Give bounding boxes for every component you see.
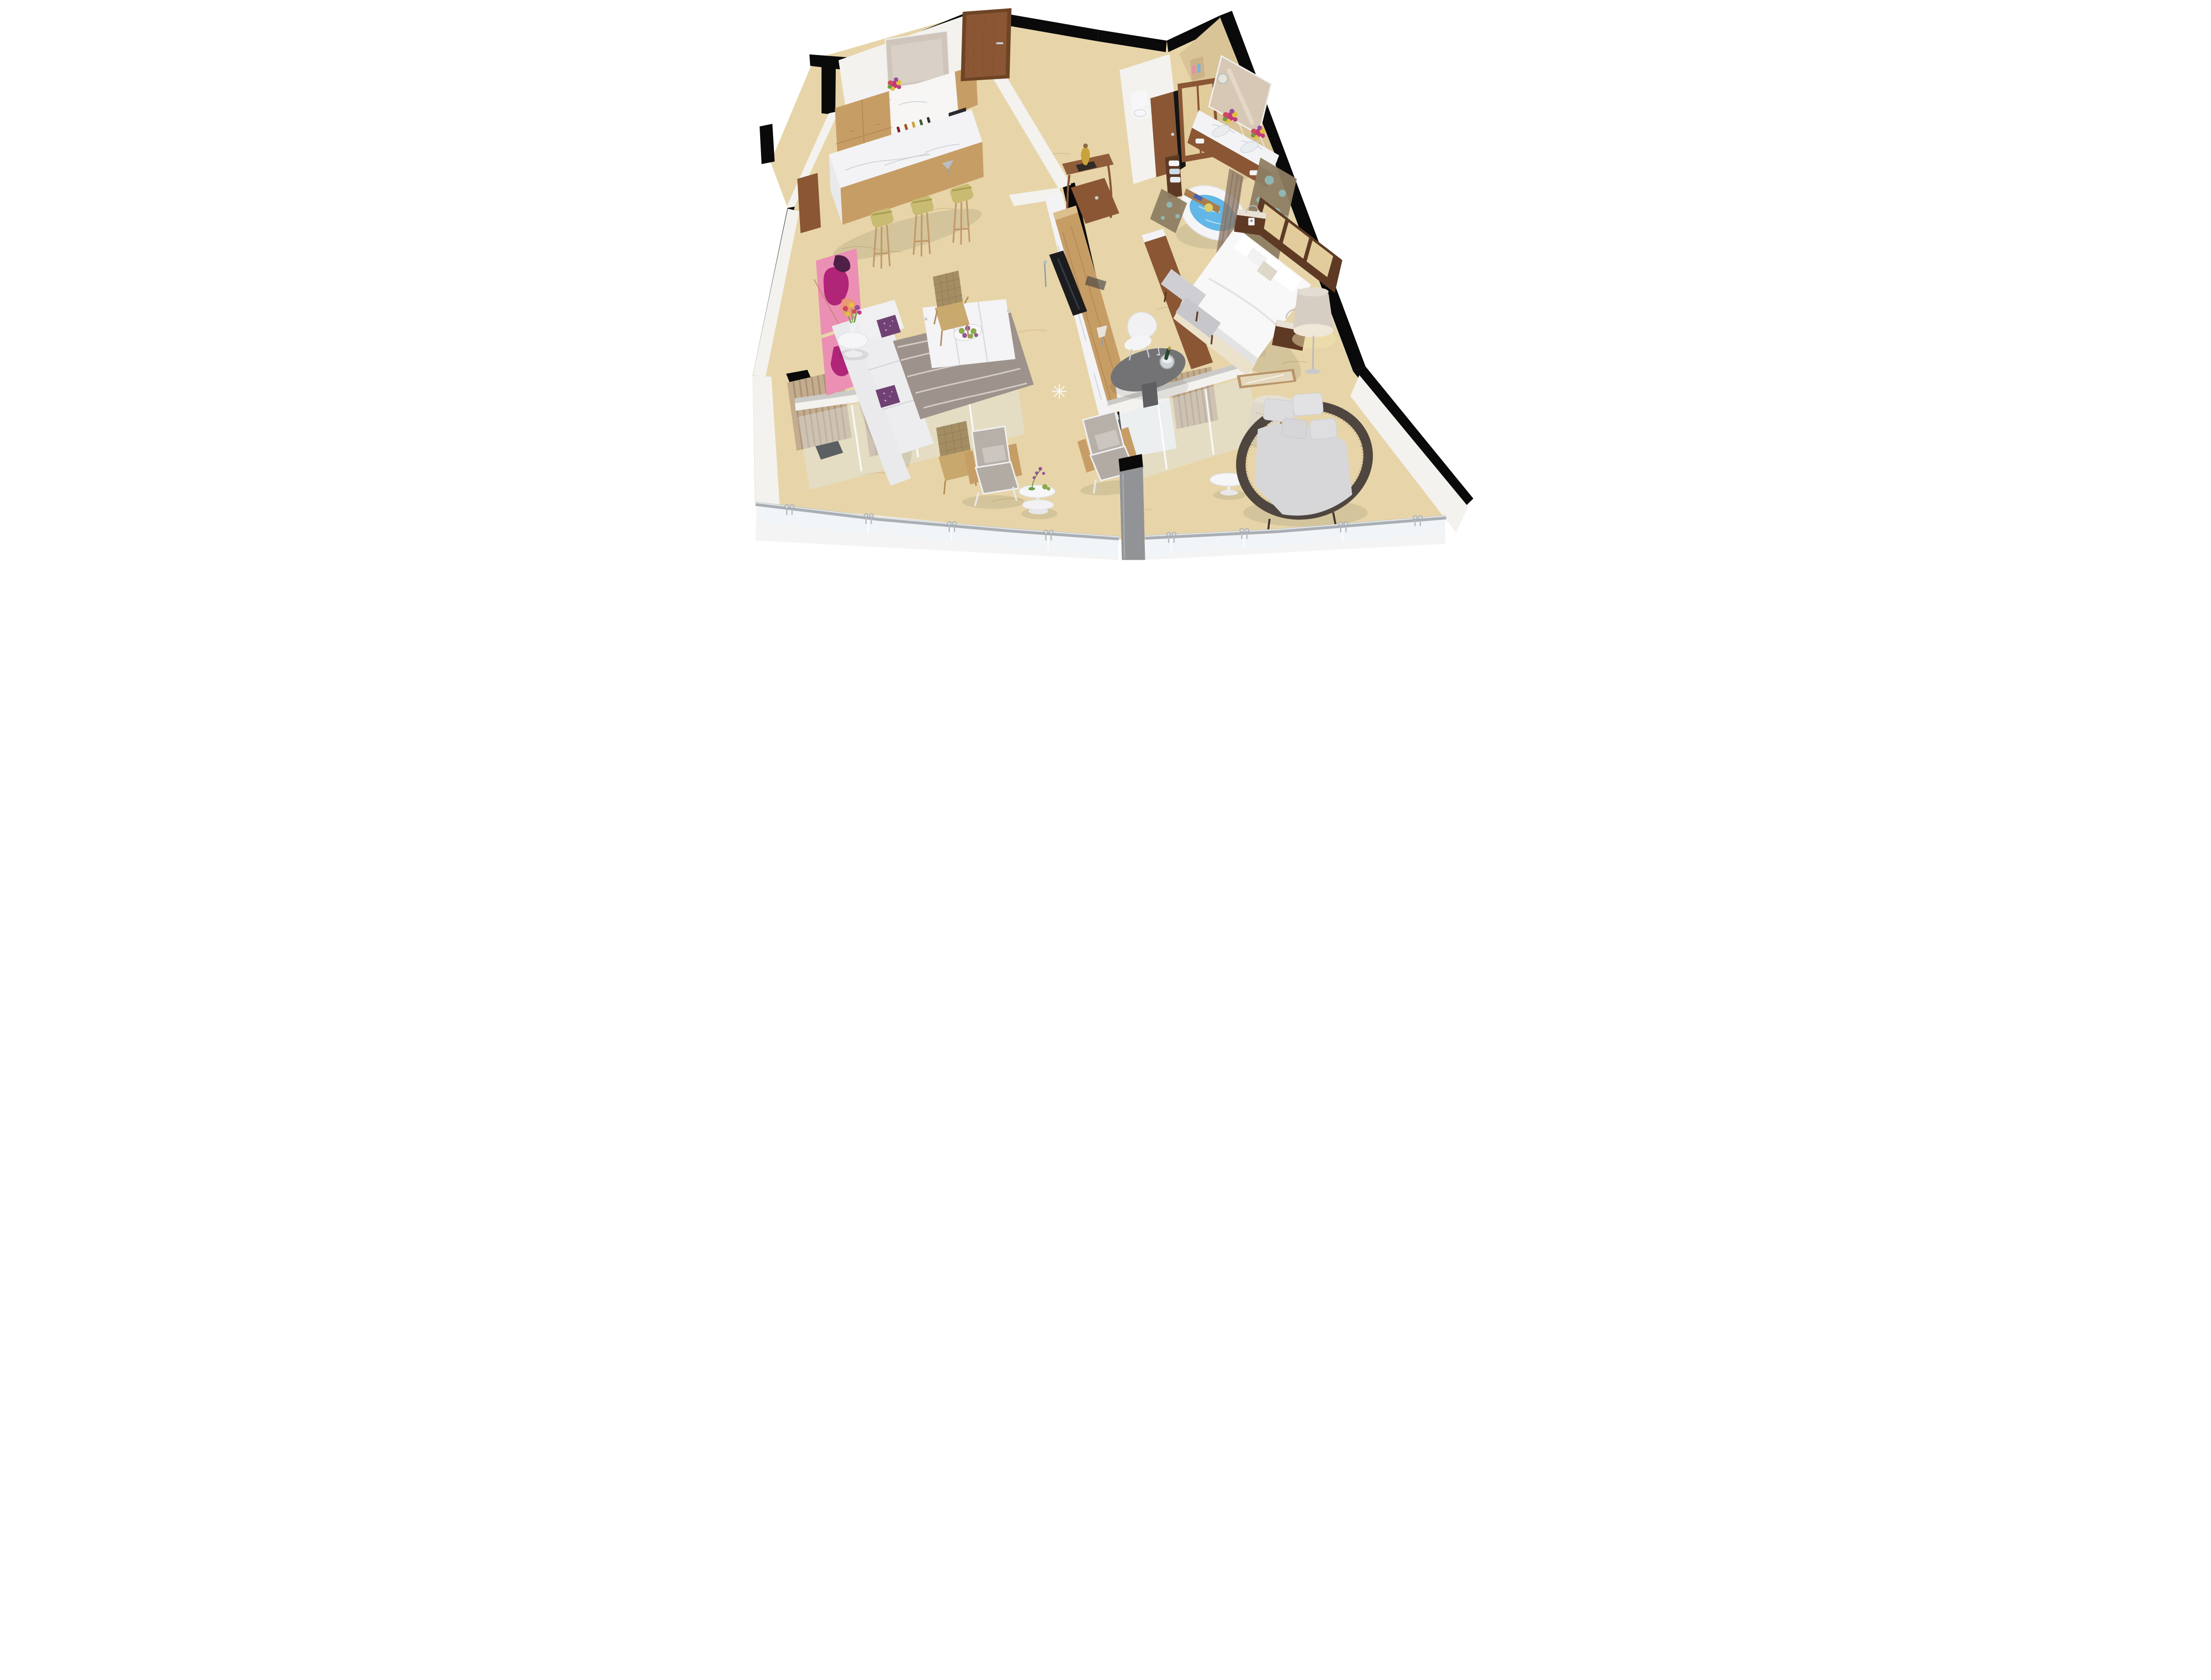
table-lower-shelf: [1022, 500, 1053, 510]
hall-door-handle: [1095, 196, 1098, 199]
wc-door-handle: [1171, 133, 1174, 136]
entry-door: [964, 12, 1007, 78]
decor-vase-top: [1044, 260, 1047, 264]
daybed-pillow: [1293, 393, 1324, 416]
amenity-logo: [1250, 220, 1252, 222]
table-clip: [925, 318, 927, 320]
floorplan-canvas: [737, 0, 1474, 560]
funnel-stem: [947, 169, 949, 173]
folded-towel: [1169, 169, 1180, 174]
sconce-lamp-stem: [1102, 338, 1103, 346]
magnifying-mirror: [1218, 74, 1228, 84]
starburst-decor: [1052, 384, 1067, 399]
lamp-stem: [1313, 336, 1313, 370]
floorplan-stage: [737, 0, 1474, 560]
wall-left-stub: [760, 124, 775, 164]
folded-towel: [1170, 177, 1180, 182]
vanity-towel: [1195, 139, 1204, 143]
toiletry-bottle-pink: [1192, 65, 1196, 74]
glass-cube: [1023, 487, 1029, 492]
gold-lamp-finial: [1083, 143, 1088, 148]
folded-towel: [1169, 161, 1179, 166]
wall-powder-left: [822, 57, 836, 114]
lamp-base: [1305, 369, 1321, 374]
left-tall-cabinet: [797, 173, 821, 233]
daybed-pillow: [1281, 418, 1308, 439]
side-table-top: [838, 332, 868, 348]
bath-sponge-ball: [1204, 203, 1213, 212]
daybed-pillow: [1309, 418, 1337, 440]
table-pedestal: [1141, 382, 1158, 408]
table-clip: [1007, 310, 1009, 312]
door-lever-handle: [996, 42, 1003, 44]
toiletry-bottle-blue: [1197, 63, 1201, 73]
